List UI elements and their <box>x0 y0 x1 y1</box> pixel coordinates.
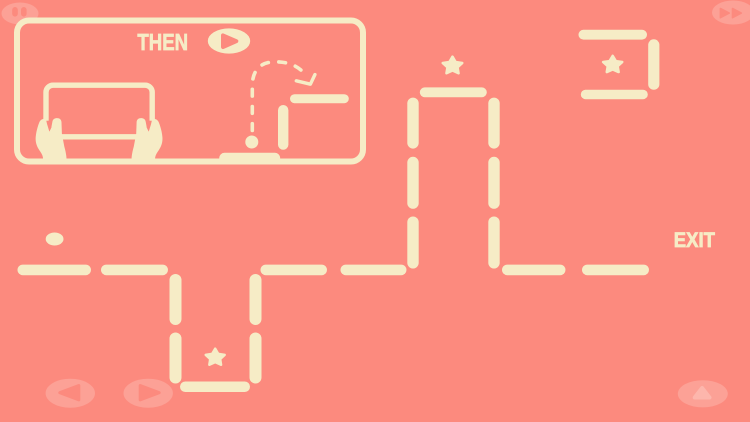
svg-text:THEN: THEN <box>137 30 188 55</box>
svg-text:EXIT: EXIT <box>674 229 715 252</box>
